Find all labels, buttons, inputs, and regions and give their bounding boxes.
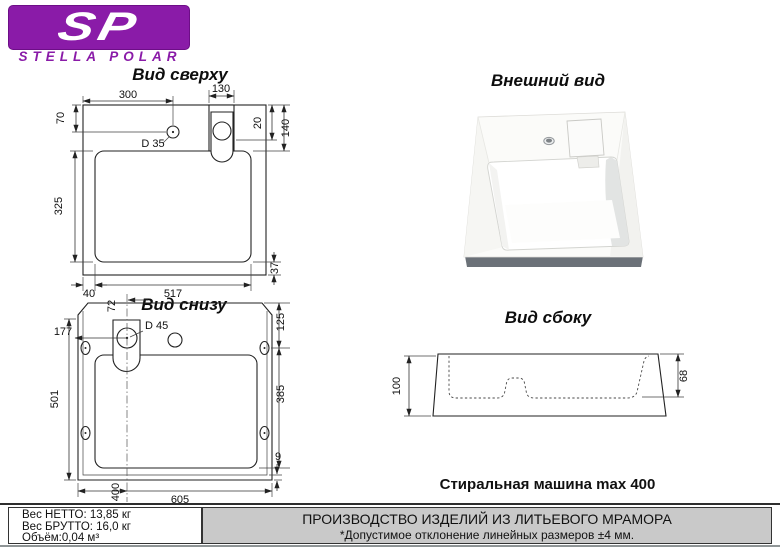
dim-bottom-501: 501 [49,390,61,408]
tolerance-note: *Допустимое отклонение линейных размеров… [203,528,771,542]
dim-bottom-177: 177 [54,326,72,338]
dim-top-140: 140 [280,119,292,137]
weight-spec-box: Вес НЕТТО: 13,85 кг Вес БРУТТО: 16,0 кг … [8,507,202,544]
dim-side-100: 100 [391,377,403,395]
dim-top-40: 40 [83,288,95,300]
dim-bottom-125: 125 [275,313,287,331]
label-bottom-d45: D 45 [145,320,168,332]
production-title: ПРОИЗВОДСТВО ИЗДЕЛИЙ ИЗ ЛИТЬЕВОГО МРАМОР… [203,511,771,527]
production-box: ПРОИЗВОДСТВО ИЗДЕЛИЙ ИЗ ЛИТЬЕВОГО МРАМОР… [202,507,772,544]
dim-bottom-385: 385 [275,385,287,403]
bottom-view-drawing: 72 D 45 177 125 385 501 9 400 605 [49,294,290,506]
dim-top-300: 300 [119,89,137,101]
net-weight: Вес НЕТТО: 13,85 кг [22,510,201,522]
volume: Объём:0,04 м³ [22,533,201,545]
dim-top-20: 20 [252,117,264,129]
external-view-photo [464,112,643,267]
dim-bottom-400: 400 [110,483,122,501]
dim-top-517: 517 [164,288,182,300]
dim-top-130: 130 [212,83,230,95]
dim-side-68: 68 [678,370,690,382]
label-top-d35: D 35 [141,138,164,150]
side-view-drawing: 100 68 [391,354,690,416]
spec-sheet: SP STELLA POLAR Вид сверху Вид снизу Вне… [0,0,780,548]
dim-top-37: 37 [269,262,281,274]
top-view-drawing: 300 130 70 20 140 D 35 325 517 40 37 [53,83,292,300]
dim-bottom-9: 9 [275,451,281,463]
washer-max-note: Стиральная машина max 400 [405,476,690,493]
technical-drawings: 300 130 70 20 140 D 35 325 517 40 37 [0,0,780,548]
sheet-bottom-edge [0,545,780,547]
dim-bottom-72: 72 [106,300,118,312]
dim-top-70: 70 [55,112,67,124]
dim-top-325: 325 [53,197,65,215]
footer-divider [0,503,780,505]
